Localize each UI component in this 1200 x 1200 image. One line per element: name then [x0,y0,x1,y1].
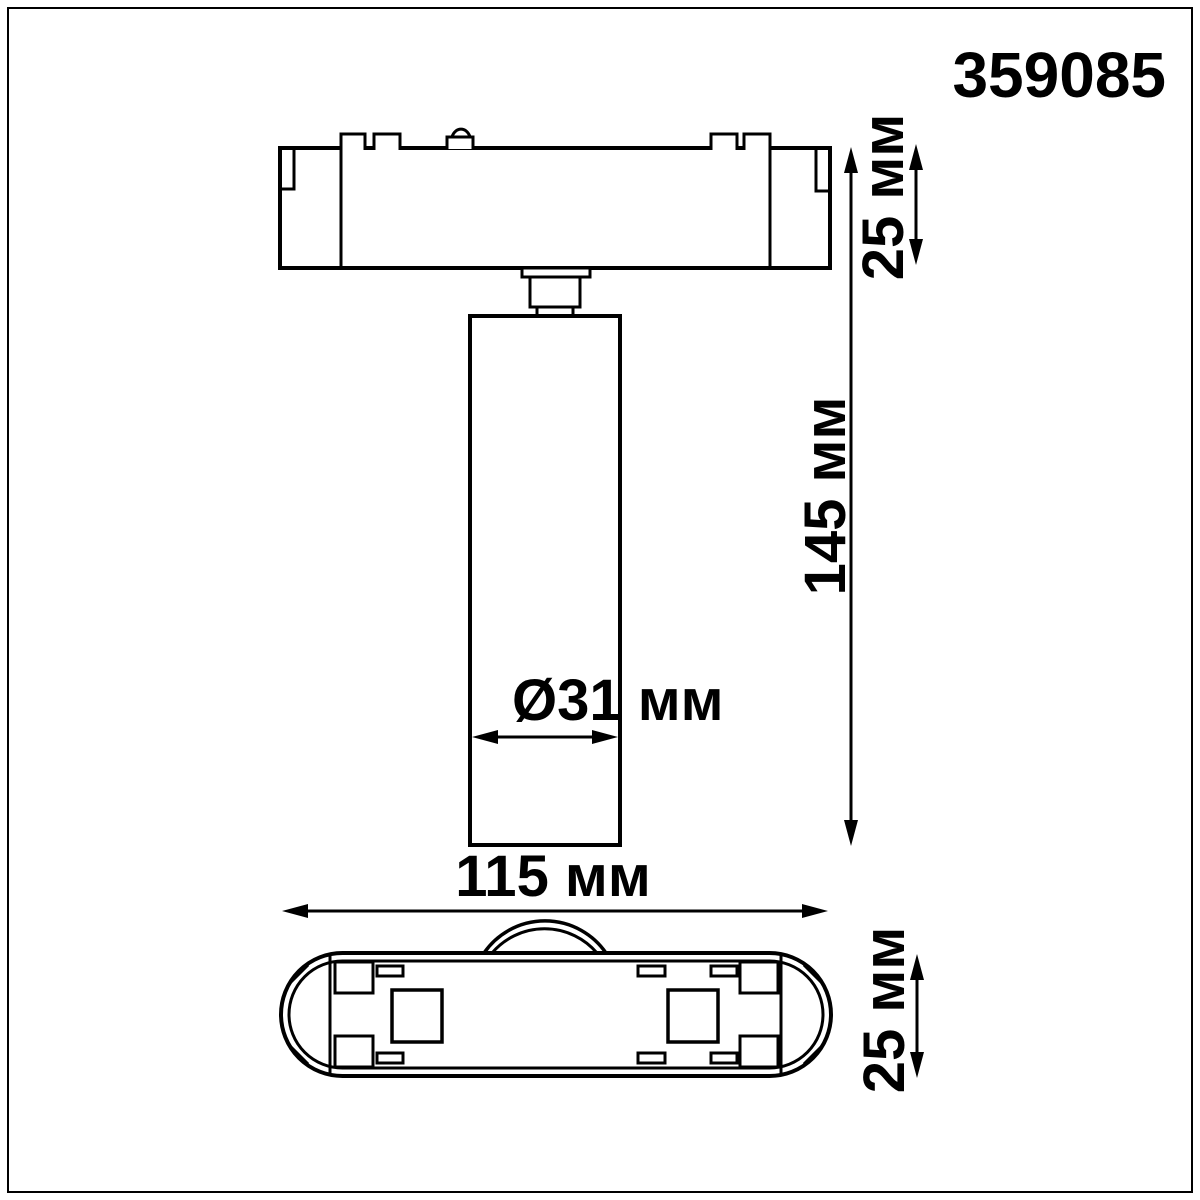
dim-label-overall-width: 115 мм [455,844,651,909]
arrow-right-icon [802,904,828,918]
contact-pad-3 [711,966,737,976]
contact-tab-4 [744,134,770,150]
swivel-block [530,277,580,307]
arrow-left-icon [282,904,308,918]
contact-pad-2 [638,966,665,976]
dim-label-base-height: 25 мм [852,927,917,1093]
magnet-square-right [668,990,718,1042]
bottom-view [281,921,831,1076]
track-adapter-body [280,148,830,268]
contact-tab-1 [341,134,365,150]
contact-tab-3 [711,134,737,150]
part-number: 359085 [952,39,1166,111]
dim-base-height: 25 мм [852,927,924,1093]
technical-drawing: 359085 25 мм 145 мм [0,0,1200,1200]
lock-button-base [447,137,473,149]
contact-tab-2 [374,134,400,150]
spot-cylinder [470,316,620,845]
contact-pad-4 [377,1053,403,1063]
magnet-square-left [392,990,442,1042]
dim-label-overall-height: 145 мм [793,397,858,596]
contact-pad-5 [638,1053,665,1063]
clip-block-bottom-right [740,1036,778,1067]
clip-block-top-left [335,962,373,993]
dim-overall-width: 115 мм [282,844,828,918]
contact-pad-1 [377,966,403,976]
dim-label-adapter-height: 25 мм [851,114,916,280]
contact-pad-6 [711,1053,737,1063]
arrow-down-icon [844,820,858,846]
clip-block-bottom-left [335,1036,373,1067]
swivel-hump-outer [484,921,606,953]
dim-label-spot-diameter: Ø31 мм [512,668,724,733]
clip-block-top-right [740,962,778,993]
dim-adapter-height: 25 мм [851,114,923,280]
